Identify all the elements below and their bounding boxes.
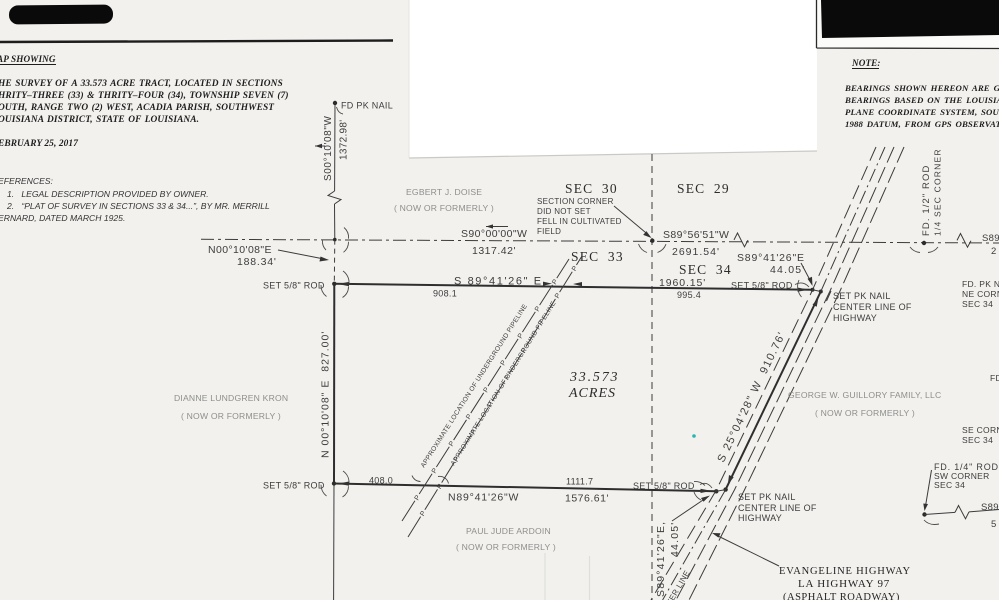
svg-text:S90°00'00"W: S90°00'00"W — [461, 228, 527, 240]
svg-text:1. LEGAL DESCRIPTION PROVIDE: 1. LEGAL DESCRIPTION PROVIDED BY OWNER. — [7, 189, 209, 199]
svg-text:FD. 1/2" ROD: FD. 1/2" ROD — [921, 165, 932, 236]
svg-text:CENTER LINE OF: CENTER LINE OF — [738, 503, 817, 513]
svg-text:BEARINGS SHOWN HEREON ARE GRID: BEARINGS SHOWN HEREON ARE GRID — [844, 83, 999, 93]
svg-text:SET PK NAIL: SET PK NAIL — [738, 492, 796, 502]
svg-text:SEC 34: SEC 34 — [679, 262, 732, 277]
svg-text:1317.42': 1317.42' — [472, 245, 516, 257]
svg-text:PAUL JUDE ARDOIN: PAUL JUDE ARDOIN — [466, 526, 551, 536]
svg-text:HE SURVEY OF A 33.573 ACRE TRA: HE SURVEY OF A 33.573 ACRE TRACT, LOCATE… — [0, 79, 283, 89]
svg-text:188.34': 188.34' — [237, 256, 277, 268]
svg-text:5: 5 — [991, 519, 997, 530]
svg-text:OUTH, RANGE TWO (2) WEST, ACAD: OUTH, RANGE TWO (2) WEST, ACADIA PARISH,… — [0, 102, 275, 113]
svg-text:( NOW OR FORMERLY ): ( NOW OR FORMERLY ) — [394, 203, 494, 213]
svg-text:SET PK NAIL: SET PK NAIL — [833, 291, 891, 301]
svg-text:SEC 30: SEC 30 — [565, 181, 618, 196]
svg-text:EVANGELINE HIGHWAY: EVANGELINE HIGHWAY — [779, 566, 911, 577]
svg-text:N 00°10'08" E 827.00': N 00°10'08" E 827.00' — [320, 331, 332, 458]
svg-text:EGBERT J. DOISE: EGBERT J. DOISE — [406, 187, 482, 197]
svg-text:33.573: 33.573 — [569, 370, 619, 385]
svg-text:SEC 29: SEC 29 — [677, 181, 730, 196]
svg-text:FD PK NAIL: FD PK NAIL — [341, 101, 393, 111]
svg-text:S00°10'08"W: S00°10'08"W — [323, 115, 334, 181]
svg-text:ERNARD, DATED MARCH 1925.: ERNARD, DATED MARCH 1925. — [0, 213, 125, 223]
svg-text:2. “PLAT OF SURVEY IN SECTIO: 2. “PLAT OF SURVEY IN SECTIONS 33 & 34..… — [6, 201, 270, 211]
svg-text:1960.15': 1960.15' — [659, 277, 706, 289]
svg-text:SET 5/8" ROD: SET 5/8" ROD — [731, 281, 793, 291]
svg-text:FD: FD — [990, 373, 999, 383]
svg-text:LA HIGHWAY 97: LA HIGHWAY 97 — [798, 578, 890, 590]
svg-text:2691.54': 2691.54' — [672, 246, 720, 258]
svg-text:N89°41'26"W: N89°41'26"W — [448, 492, 519, 504]
svg-text:DIANNE LUNDGREN KRON: DIANNE LUNDGREN KRON — [174, 393, 288, 403]
svg-text:1372.98': 1372.98' — [339, 120, 350, 160]
svg-text:1576.61': 1576.61' — [565, 493, 609, 505]
svg-text:( NOW OR FORMERLY ): ( NOW OR FORMERLY ) — [815, 408, 915, 418]
svg-text:SEC 34: SEC 34 — [962, 435, 993, 445]
svg-text:N00°10'08"E: N00°10'08"E — [208, 244, 272, 256]
svg-text:NOTE:: NOTE: — [851, 58, 881, 68]
svg-text:1988 DATUM, FROM GPS OBSERVATI: 1988 DATUM, FROM GPS OBSERVATI — [845, 119, 999, 129]
svg-text:CENTER LINE OF: CENTER LINE OF — [833, 302, 912, 312]
svg-text:S89°: S89° — [982, 233, 999, 244]
svg-text:995.4: 995.4 — [677, 290, 701, 300]
svg-text:SET 5/8" ROD: SET 5/8" ROD — [263, 481, 325, 491]
svg-text:S89°41'26"E,: S89°41'26"E, — [655, 521, 667, 597]
svg-text:FELL IN CULTIVATED: FELL IN CULTIVATED — [537, 217, 622, 226]
svg-text:EFERENCES:: EFERENCES: — [0, 176, 54, 186]
svg-text:ACRES: ACRES — [568, 386, 616, 401]
svg-text:408.0: 408.0 — [369, 476, 393, 486]
svg-text:S89°: S89° — [981, 502, 999, 513]
svg-text:2: 2 — [991, 246, 997, 257]
svg-text:S89°41'26"E: S89°41'26"E — [737, 252, 805, 264]
svg-text:SEC 34: SEC 34 — [934, 480, 965, 490]
svg-text:( NOW OR FORMERLY ): ( NOW OR FORMERLY ) — [181, 411, 281, 421]
svg-text:FIELD: FIELD — [537, 227, 561, 236]
svg-text:908.1: 908.1 — [433, 289, 457, 299]
svg-text:(ASPHALT ROADWAY): (ASPHALT ROADWAY) — [783, 592, 900, 600]
svg-text:SEC 34: SEC 34 — [962, 299, 993, 309]
svg-text:( NOW OR FORMERLY ): ( NOW OR FORMERLY ) — [456, 542, 556, 552]
svg-text:PLANE COORDINATE SYSTEM, SOUTH: PLANE COORDINATE SYSTEM, SOUTH — [845, 107, 999, 117]
svg-text:1111.7: 1111.7 — [566, 477, 593, 487]
svg-text:HRITY–THREE (33) & THRITY–FOUR: HRITY–THREE (33) & THRITY–FOUR (34), TOW… — [0, 90, 289, 101]
svg-text:SET 5/8" ROD: SET 5/8" ROD — [263, 281, 325, 291]
svg-text:SET 5/8" ROD: SET 5/8" ROD — [633, 481, 695, 491]
svg-text:44.05': 44.05' — [770, 264, 805, 276]
svg-text:1/4 SEC CORNER: 1/4 SEC CORNER — [933, 148, 943, 236]
svg-text:S 89°41'26" E: S 89°41'26" E — [454, 276, 543, 288]
svg-text:EBRUARY 25, 2017: EBRUARY 25, 2017 — [0, 139, 78, 149]
svg-text:NE CORN: NE CORN — [962, 289, 999, 299]
svg-text:OUISIANA DISTRICT, STATE OF LO: OUISIANA DISTRICT, STATE OF LOUISIANA. — [0, 115, 199, 125]
svg-text:AP SHOWING: AP SHOWING — [0, 54, 56, 64]
svg-text:SECTION CORNER: SECTION CORNER — [537, 197, 614, 206]
svg-text:SE CORN: SE CORN — [962, 425, 999, 435]
svg-text:GEORGE W. GUILLORY FAMILY, LLC: GEORGE W. GUILLORY FAMILY, LLC — [788, 390, 941, 400]
svg-text:HIGHWAY: HIGHWAY — [738, 513, 782, 523]
svg-text:FD. PK N: FD. PK N — [962, 279, 999, 289]
svg-text:DID NOT SET: DID NOT SET — [537, 207, 591, 216]
svg-text:HIGHWAY: HIGHWAY — [833, 313, 877, 323]
svg-text:S89°56'51"W: S89°56'51"W — [663, 229, 729, 241]
svg-text:BEARINGS BASED ON THE LOUISIAN: BEARINGS BASED ON THE LOUISIANA — [844, 95, 999, 105]
